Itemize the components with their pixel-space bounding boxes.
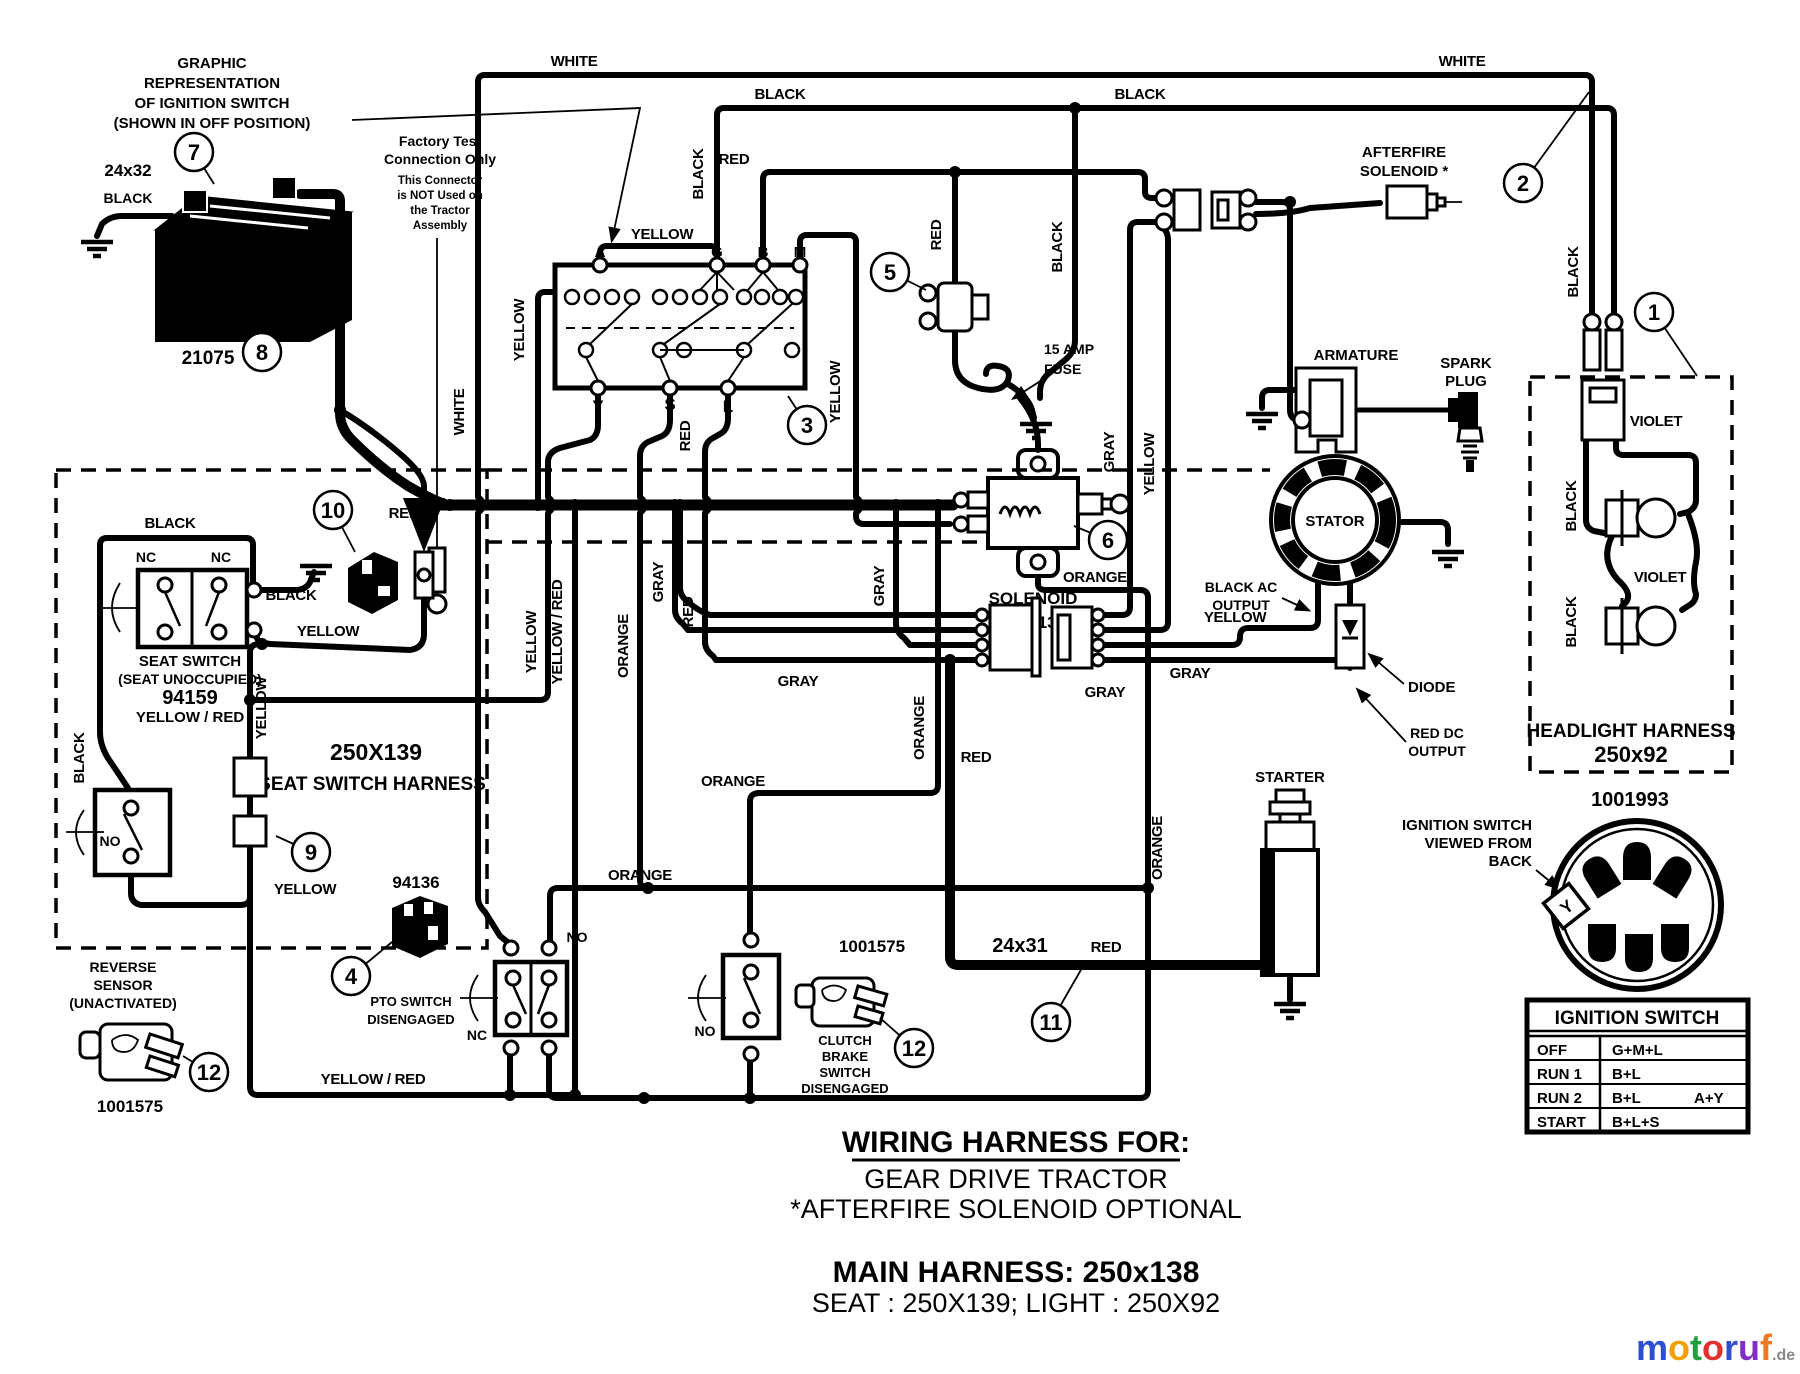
footer-main-harness: MAIN HARNESS: 250x138 <box>833 1256 1200 1289</box>
callout-11: 11 <box>1032 968 1082 1041</box>
note-line: GRAPHIC <box>177 55 246 72</box>
note-line: OF IGNITION SWITCH <box>135 95 290 112</box>
table-row-val: G+M+L <box>1612 1042 1663 1059</box>
battery-ground-icon <box>81 242 113 256</box>
rotary-terminal-m: M <box>1631 857 1644 874</box>
table-title: IGNITION SWITCH <box>1555 1008 1720 1029</box>
note-line: (SHOWN IN OFF POSITION) <box>114 115 311 132</box>
wire-color-label: BLACK <box>1115 86 1166 103</box>
wire-color-label: BLACK <box>145 515 196 532</box>
rotary-terminal-b: B <box>1670 938 1681 955</box>
callout-number: 3 <box>801 413 813 438</box>
seat-nc-label: NC <box>211 549 231 565</box>
wire-color-label: VIOLET <box>1634 569 1687 586</box>
callout-4: 4 <box>332 942 392 995</box>
black-ac-output-label: BLACK AC <box>1205 579 1278 595</box>
clutch-no-label: NO <box>695 1023 716 1039</box>
red-dc-output-label: OUTPUT <box>1408 743 1466 759</box>
battery-cable-color: BLACK <box>104 190 153 206</box>
reverse-sensor-label: SENSOR <box>93 977 152 993</box>
callout-number: 11 <box>1039 1010 1062 1035</box>
headlight-harness-label: HEADLIGHT HARNESS <box>1526 721 1735 742</box>
wire-color-label: RED <box>961 749 992 766</box>
wire-color-label: ORANGE <box>1063 569 1127 586</box>
logo-letter: r <box>1724 1327 1738 1368</box>
callout-number: 1 <box>1648 300 1660 325</box>
terminal-s: S <box>664 395 675 414</box>
svg-text:motoruf.de: motoruf.de <box>1636 1327 1795 1368</box>
wire-color-label: RED <box>928 219 945 250</box>
wire-color-label: BLACK <box>1563 480 1580 531</box>
wire-color-label: YELLOW <box>1141 432 1158 496</box>
starter-wire-label: 24x31 <box>992 935 1048 957</box>
seat-harness-label: SEAT SWITCH HARNESS <box>258 774 486 795</box>
spark-plug-label: SPARK <box>1440 355 1492 372</box>
armature-label: ARMATURE <box>1314 347 1399 364</box>
wire-color-label: YELLOW <box>253 676 270 740</box>
ignition-switch-graphic: A G B M Y S L <box>555 244 807 416</box>
wire-color-label: WHITE <box>1439 53 1486 70</box>
battery-part-number: 21075 <box>182 348 235 369</box>
terminal-g: G <box>711 244 723 261</box>
afterfire-label: SOLENOID * <box>1360 163 1449 180</box>
callout-number: 5 <box>884 260 896 285</box>
rotary-terminal-l: L <box>1634 948 1643 965</box>
wire-color-label: ORANGE <box>1149 816 1166 880</box>
afterfire-solenoid: AFTERFIRE SOLENOID * <box>1156 144 1462 230</box>
table-row-val: B+L <box>1612 1066 1641 1083</box>
wire-color-label: YELLOW <box>827 360 844 424</box>
clutch-switch-label: DISENGAGED <box>801 1081 888 1096</box>
clutch-connector-glyph <box>796 978 887 1026</box>
wire-color-label: WHITE <box>451 388 468 435</box>
wire-color-label: GRAY <box>871 565 888 606</box>
wire-color-label: YELLOW <box>631 226 695 243</box>
callout-number: 4 <box>345 964 358 989</box>
callout-1: 1 <box>1635 293 1697 376</box>
table-row-pos: OFF <box>1537 1042 1567 1059</box>
armature-ground-icon <box>1246 414 1278 428</box>
seat-nc-label: NC <box>136 549 156 565</box>
headlight-bulb <box>1606 490 1675 546</box>
bundle-connectors <box>976 598 1104 676</box>
callout-number: 12 <box>902 1036 926 1061</box>
callout-10: 10 <box>314 491 355 552</box>
clutch-switch-label: CLUTCH <box>818 1033 871 1048</box>
logo-letter: o <box>1668 1327 1690 1368</box>
callout-number: 12 <box>197 1060 221 1085</box>
callout-12: 12 <box>183 1053 228 1091</box>
factory-test-line: is NOT Used on <box>397 190 483 202</box>
spark-plug-label: PLUG <box>1445 373 1487 390</box>
wire-color-label: GRAY <box>1170 665 1211 682</box>
diode-label: DIODE <box>1408 679 1456 696</box>
callout-number: 9 <box>305 840 317 865</box>
callout-7: 7 <box>175 133 214 184</box>
afterfire-label: AFTERFIRE <box>1362 144 1446 161</box>
wire-color-label: YELLOW / RED <box>549 579 566 684</box>
battery-cable-label: 24x32 <box>104 161 151 180</box>
wire-color-label: BLACK <box>690 148 707 199</box>
title-block: WIRING HARNESS FOR: GEAR DRIVE TRACTOR *… <box>790 1126 1242 1318</box>
wire-color-label: ORANGE <box>701 773 765 790</box>
wire-color-label: BLACK <box>1563 596 1580 647</box>
table-row-extra: A+Y <box>1694 1090 1724 1107</box>
callout-12: 12 <box>880 1018 933 1067</box>
rotary-note: BACK <box>1489 853 1532 870</box>
seat-harness-part: 250X139 <box>330 739 422 765</box>
table-row-val: B+L <box>1612 1090 1641 1107</box>
footer-title: WIRING HARNESS FOR: <box>842 1126 1190 1159</box>
table-row-pos: RUN 1 <box>1537 1066 1582 1083</box>
stator-ground-icon <box>1432 552 1464 566</box>
clutch-switch-label: SWITCH <box>819 1065 870 1080</box>
headlight-bulb <box>1606 598 1675 654</box>
callout-number: 2 <box>1517 171 1529 196</box>
rotary-note: IGNITION SWITCH <box>1402 817 1532 834</box>
rotary-note: VIEWED FROM <box>1425 835 1533 852</box>
reverse-sensor-label: REVERSE <box>90 959 157 975</box>
callout-number: 10 <box>321 498 345 523</box>
wire-color-label: VIOLET <box>1630 413 1683 430</box>
wire-color-label: BLACK <box>1565 246 1582 297</box>
clutch-part-number: 1001575 <box>839 937 905 956</box>
note-line: REPRESENTATION <box>144 75 280 92</box>
stator: STATOR <box>1271 456 1399 584</box>
red-dc-output-label: RED DC <box>1410 725 1464 741</box>
wire-color-label: GRAY <box>1101 431 1118 472</box>
pto-switch-label: PTO SWITCH <box>370 994 451 1009</box>
table-row-pos: RUN 2 <box>1537 1090 1582 1107</box>
footer-sub-harness: SEAT : 250X139; LIGHT : 250X92 <box>812 1288 1220 1318</box>
ignition-switch-table: IGNITION SWITCH OFF G+M+L RUN 1 B+L RUN … <box>1527 1000 1748 1132</box>
wire-color-label: RED <box>719 151 750 168</box>
headlight-harness: HEADLIGHT HARNESS 250x92 <box>1526 314 1735 767</box>
terminal-a: A <box>595 244 606 261</box>
terminal-y: Y <box>592 397 604 416</box>
callout-3: 3 <box>788 396 826 444</box>
reverse-sensor: NO REVERSE SENSOR (UNACTIVATED) 1001575 <box>66 790 182 1116</box>
factory-test-line: Assembly <box>413 220 468 232</box>
fuse-ground-icon <box>1020 424 1052 438</box>
wire-color-label: RED <box>677 420 694 451</box>
table-row-val: B+L+S <box>1612 1114 1660 1131</box>
seat-harness-connector <box>234 816 266 846</box>
pto-no-label: NO <box>567 929 588 945</box>
wire-color-label: YELLOW <box>274 881 338 898</box>
wire-color-label: RED <box>389 505 420 522</box>
wire-color-label: RED <box>680 596 697 627</box>
wire-color-label: BLACK <box>1049 221 1066 272</box>
footer-line: GEAR DRIVE TRACTOR <box>864 1164 1168 1194</box>
wire-color-label: RED <box>1091 939 1122 956</box>
factory-test-line: Factory Test <box>399 133 482 149</box>
clutch-switch-label: BRAKE <box>822 1049 869 1064</box>
wire-color-label: BLACK <box>266 587 317 604</box>
reverse-no-label: NO <box>100 833 121 849</box>
wiring-diagram-page: GRAPHIC REPRESENTATION OF IGNITION SWITC… <box>0 0 1800 1374</box>
logo-letter: m <box>1636 1327 1668 1368</box>
logo-suffix: .de <box>1772 1347 1795 1364</box>
footer-line: *AFTERFIRE SOLENOID OPTIONAL <box>790 1194 1242 1224</box>
wire-color-label: YELLOW <box>523 610 540 674</box>
factory-test-line: the Tractor <box>410 205 470 217</box>
pto-switch-label: DISENGAGED <box>367 1012 454 1027</box>
wiring-diagram: GRAPHIC REPRESENTATION OF IGNITION SWITC… <box>0 0 1800 1374</box>
callout-number: 6 <box>1102 528 1114 553</box>
seat-ground-icon <box>300 566 332 580</box>
starter-ground-icon <box>1274 1004 1306 1018</box>
rotary-part-number: 1001993 <box>1591 789 1669 811</box>
wire-color-label: GRAY <box>650 561 667 602</box>
wire-color-label: YELLOW <box>511 298 528 362</box>
motoruf-logo[interactable]: motoruf.de <box>1636 1327 1795 1368</box>
callout-9: 9 <box>276 833 330 871</box>
wire-color-label: WHITE <box>551 53 598 70</box>
clutch-brake-switch: NO 1001575 CLUTCH BRAKE SWITCH DISENGAGE… <box>688 933 905 1096</box>
seat-relay-module <box>348 552 398 614</box>
fuse-label: 15 AMP <box>1044 341 1094 357</box>
headlight-harness-part: 250x92 <box>1594 742 1667 767</box>
logo-letter: u <box>1738 1327 1760 1368</box>
wire-color-label: BLACK <box>71 732 88 783</box>
rotary-ignition-switch: IGNITION SWITCH VIEWED FROM BACK 1001993… <box>1402 789 1721 989</box>
table-row-pos: START <box>1537 1114 1586 1131</box>
pto-nc-label: NC <box>467 1027 487 1043</box>
seat-switch-part: 94159 <box>162 687 218 709</box>
wire-color-label: YELLOW <box>297 623 361 640</box>
seat-switch-label: (SEAT UNOCCUPIED) <box>118 671 262 687</box>
seat-switch-wirecolor: YELLOW / RED <box>136 709 245 726</box>
seat-harness-connector <box>234 758 266 796</box>
wire-color-label: BLACK <box>755 86 806 103</box>
callout-number: 8 <box>256 340 268 365</box>
reverse-sensor-glyph <box>80 1024 182 1080</box>
factory-test-line: Connection Only <box>384 151 496 167</box>
wire-color-label: YELLOW / RED <box>321 1071 426 1088</box>
terminal-m: M <box>794 244 807 261</box>
rotary-terminal-g: G <box>1596 938 1608 955</box>
logo-letter: t <box>1690 1327 1702 1368</box>
reverse-sensor-label: (UNACTIVATED) <box>69 995 177 1011</box>
wire-color-label: YELLOW <box>1204 609 1268 626</box>
pto-part-number: 94136 <box>392 873 439 892</box>
wire-color-label: GRAY <box>778 673 819 690</box>
terminal-b: B <box>758 244 769 261</box>
wire-color-label: ORANGE <box>911 696 928 760</box>
wire-color-label: GRAY <box>1085 684 1126 701</box>
wire-color-label: ORANGE <box>608 867 672 884</box>
callout-number: 7 <box>188 140 200 165</box>
callout-6: 6 <box>1074 521 1127 559</box>
terminal-l: L <box>723 397 733 416</box>
reverse-sensor-part: 1001575 <box>97 1097 163 1116</box>
fuse-label: FUSE <box>1044 361 1081 377</box>
stator-label: STATOR <box>1305 513 1364 530</box>
headlight-harness-dashed-box <box>1530 377 1732 772</box>
factory-test-line: This Connector <box>398 175 483 187</box>
callout-5: 5 <box>871 253 926 291</box>
wire-color-label: ORANGE <box>615 614 632 678</box>
logo-letter: o <box>1702 1327 1724 1368</box>
starter-label: STARTER <box>1255 769 1325 786</box>
seat-switch-label: SEAT SWITCH <box>139 653 241 670</box>
